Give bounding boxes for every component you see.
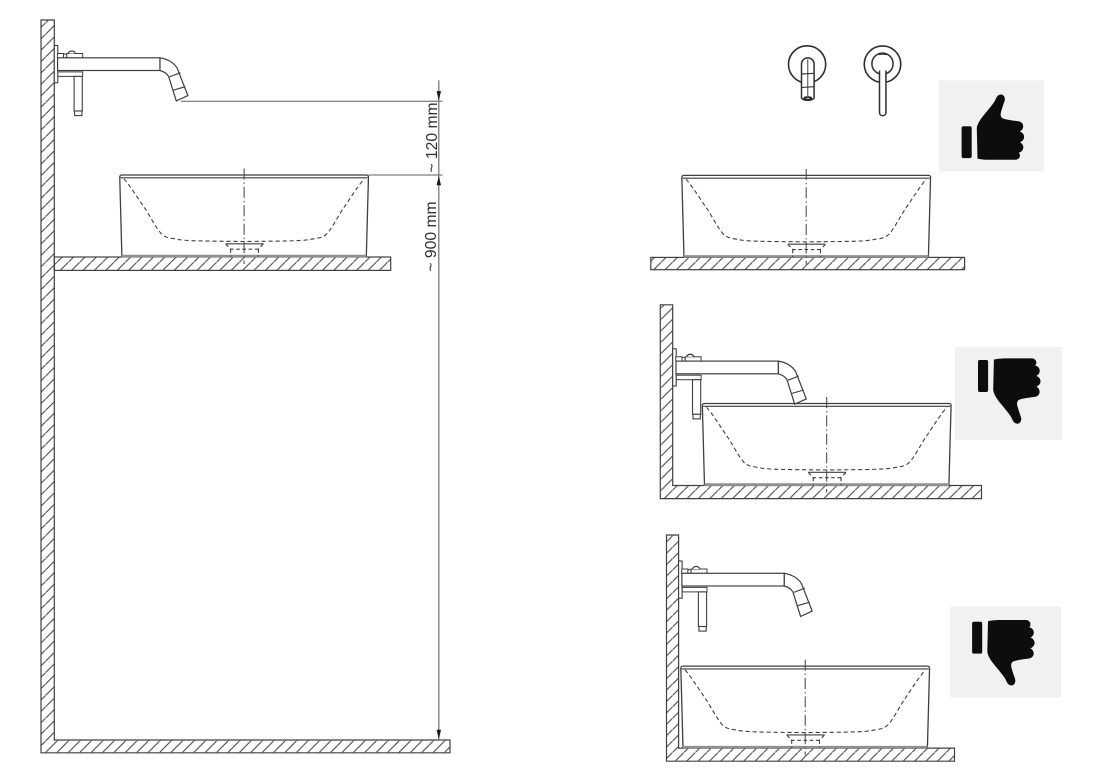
svg-text:~ 120 mm: ~ 120 mm <box>424 102 441 172</box>
svg-text:~ 900 mm: ~ 900 mm <box>423 201 440 271</box>
